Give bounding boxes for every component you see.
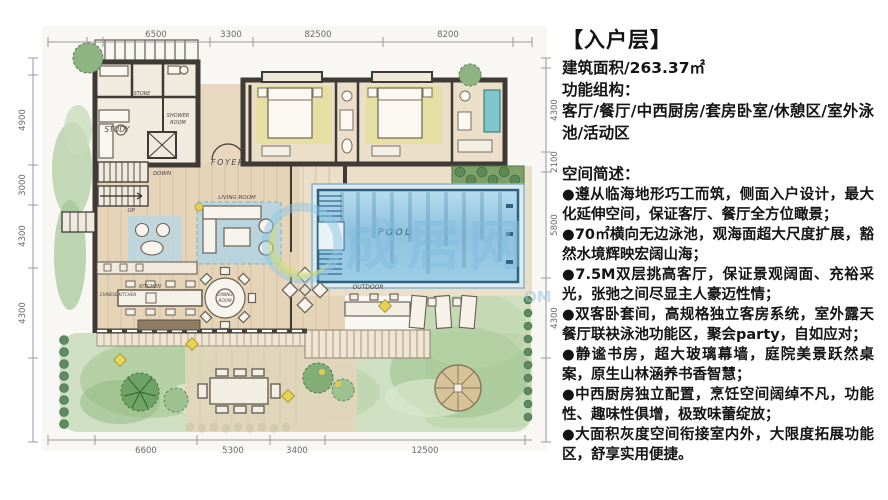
dim-bottom-4: 12500 — [411, 446, 438, 456]
dim-left-4: 4300 — [18, 302, 28, 324]
study-label: STUDY — [104, 125, 131, 134]
dim-right-3: 5800 — [550, 214, 560, 236]
watermark-suffix: OM — [524, 288, 552, 306]
shower-room-label-2: ROOM — [170, 120, 186, 126]
chinese-kitchen-label: CHINESE KITCHEN — [100, 292, 136, 297]
brief-heading: 空间简述： — [562, 164, 874, 185]
down-label: DOWN — [153, 171, 171, 177]
dim-right-4: 4300 — [550, 307, 560, 329]
dim-top-3: 82500 — [304, 30, 331, 40]
dim-top-4: 8200 — [437, 30, 459, 40]
brief-bullet-1: ●遵从临海地形巧工而筑，侧面入户设计，最大化延伸空间，保证客厅、餐厅全方位瞰景； — [562, 185, 874, 225]
brief-bullet-7: ●大面积灰度空间衔接室内外，大限度拓展功能区，舒享实用便捷。 — [562, 425, 874, 465]
dim-bottom-1: 6600 — [135, 446, 157, 456]
brief-bullet-6: ●中西厨房独立配置，烹饪空间阔绰不凡，功能性、趣味性俱增，极致味蕾绽放； — [562, 385, 874, 425]
dim-bottom-2: 5300 — [222, 446, 244, 456]
function-heading: 功能组构： — [562, 80, 874, 102]
floor-plan: POOL — [0, 0, 560, 500]
dim-left-2: 3000 — [18, 174, 28, 196]
dim-top-1: 6500 — [145, 30, 167, 40]
outdoor-stair — [305, 330, 430, 358]
dim-left-3: 4300 — [18, 225, 28, 247]
seating-nook — [128, 216, 182, 264]
dining-room-label-2: ROOM — [218, 298, 232, 303]
store-label: STORE — [134, 91, 152, 97]
shower-room-label-1: SHOWER — [167, 113, 189, 119]
watermark-text: 成居网 — [345, 214, 531, 277]
function-list: 客厅/餐厅/中西厨房/套房卧室/休憩区/室外泳池/活动区 — [562, 101, 874, 144]
dim-right-2: 2100 — [550, 151, 560, 173]
brief-bullet-4: ●双客卧套间，高规格独立客房系统，室外露天餐厅联袂泳池功能区，聚会party，自… — [562, 305, 874, 345]
brief-bullet-5: ●静谧书房，超大玻璃幕墙，庭院美景跃然桌案，原生山林涵养书香智慧； — [562, 345, 874, 385]
dining-room-label-1: DINING — [217, 292, 233, 297]
info-panel: 【入户层】 建筑面积/263.37㎡ 功能组构： 客厅/餐厅/中西厨房/套房卧室… — [562, 28, 874, 465]
panel-title: 【入户层】 — [562, 28, 874, 53]
brief-bullet-2: ●70㎡横向无边泳池，观海面超大尺度扩展，豁然水境辉映宏阔山海； — [562, 225, 874, 265]
kitchen-label: KITCHEN — [139, 284, 161, 290]
living-room-label: LIVING ROOM — [218, 195, 256, 201]
outdoor-label: OUTDOOR — [352, 284, 383, 291]
dim-right-1: 4300 — [550, 99, 560, 121]
dim-left-1: 4900 — [18, 109, 28, 131]
parasol — [435, 365, 481, 411]
building-area: 建筑面积/263.37㎡ — [562, 58, 874, 80]
sun-loungers — [409, 295, 477, 328]
dim-bottom-3: 3400 — [286, 446, 308, 456]
floor-plan-drawing: POOL — [0, 0, 560, 500]
brief-bullet-3: ●7.5M双层挑高客厅，保证景观阔面、充裕采光，张弛之间尽显主人豪迈性情； — [562, 265, 874, 305]
page: POOL — [0, 0, 888, 500]
dim-top-2: 3300 — [220, 30, 242, 40]
foyer-label: FOYER — [211, 158, 245, 167]
steps-band — [97, 333, 307, 346]
up-label: UP — [127, 208, 135, 214]
